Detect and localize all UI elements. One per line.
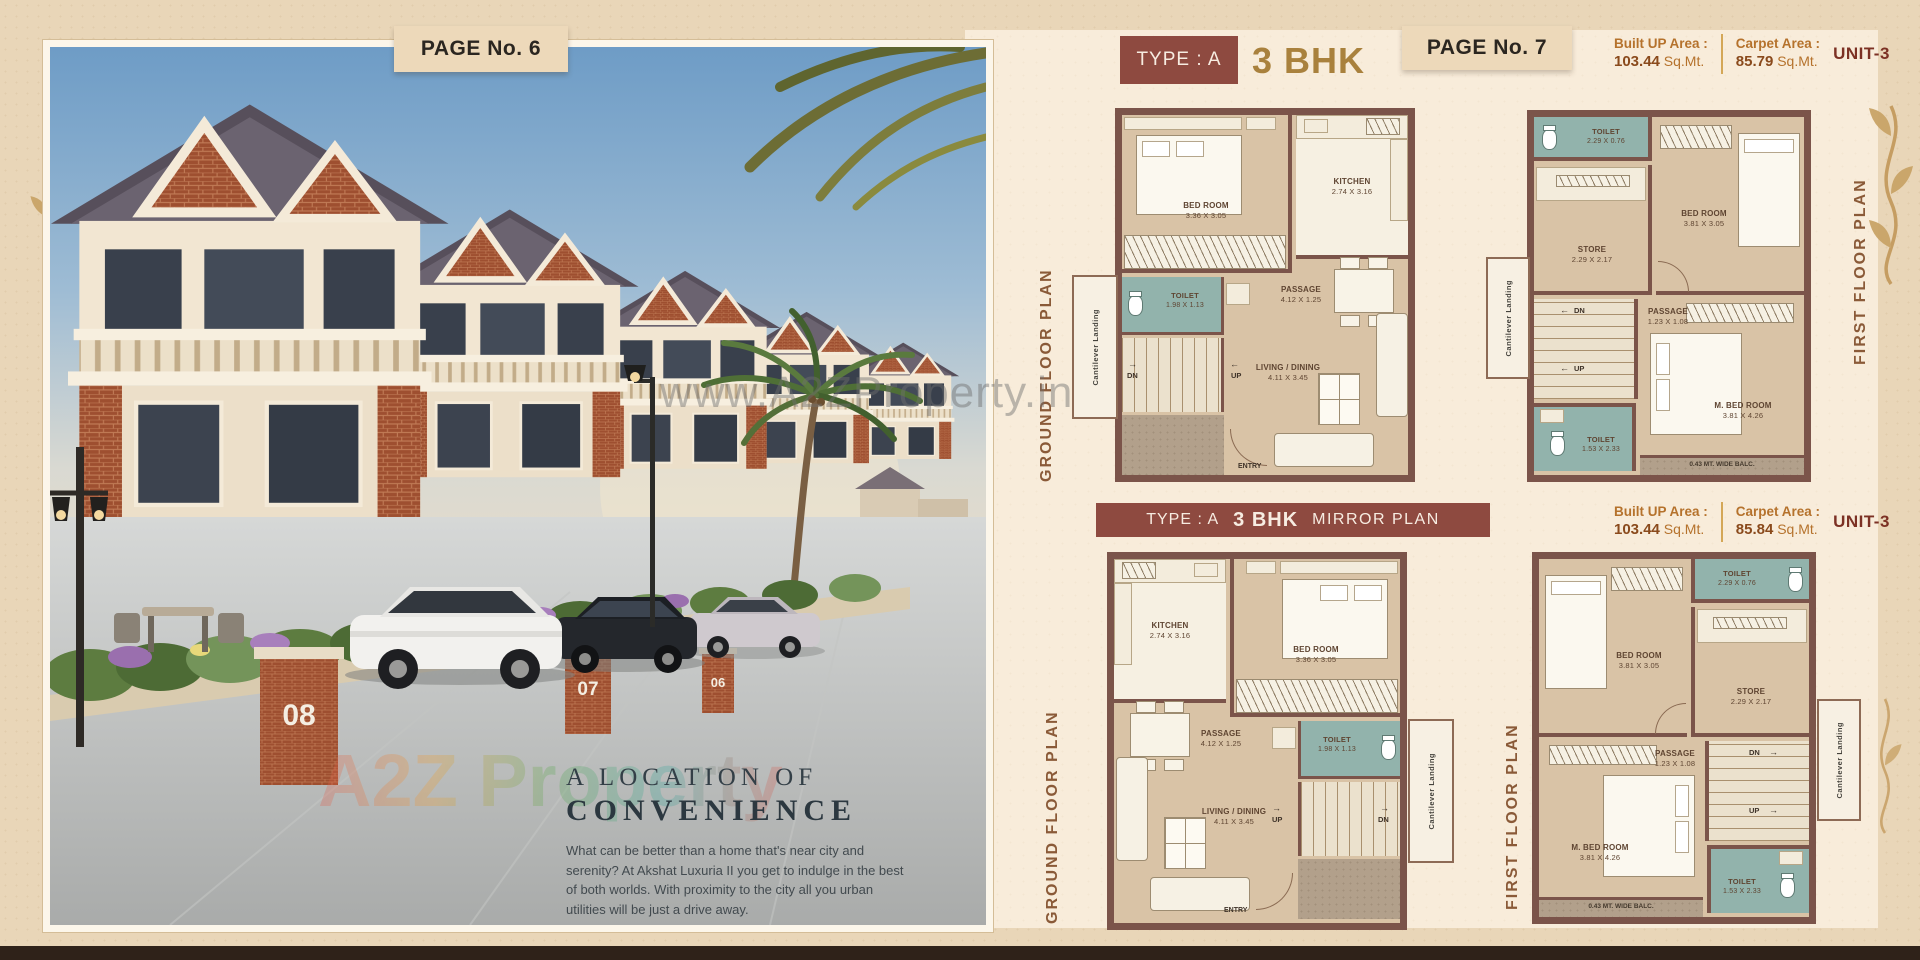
plan-title-mirror-gf: GROUND FLOOR PLAN [1044, 702, 1062, 932]
stair-arrow-icon [1769, 805, 1778, 815]
wc-icon [1128, 295, 1143, 316]
unit-tag: UNIT-3 [1833, 44, 1890, 64]
wardrobe-hatch [1660, 125, 1732, 149]
label-bedroom: BED ROOM3.81 X 3.05 [1658, 209, 1750, 229]
area-info-bottom: Built UP Area : 103.44 Sq.Mt. Carpet Are… [1614, 502, 1890, 542]
stove-icon [1122, 562, 1156, 579]
carpet-value: 85.79 [1736, 53, 1774, 70]
pillow [1142, 141, 1170, 157]
pillow [1744, 139, 1794, 153]
mirror-suffix-label: MIRROR PLAN [1312, 511, 1440, 529]
label-store: STORE2.29 X 2.17 [1697, 687, 1805, 707]
area-info-top: Built UP Area : 103.44 Sq.Mt. Carpet Are… [1614, 34, 1890, 74]
washbasin [1779, 851, 1803, 865]
carpet-unit: Sq.Mt. [1777, 521, 1817, 537]
chair [1164, 701, 1184, 713]
label-toilet-top: TOILET2.29 X 0.76 [1566, 127, 1646, 146]
mirror-type-label: TYPE : A [1146, 511, 1219, 529]
caption-body: What can be better than a home that's ne… [566, 841, 906, 919]
wardrobe-hatch [1611, 567, 1683, 591]
stair-arrow-icon [1560, 363, 1569, 373]
stair-arrow-icon [1560, 305, 1569, 315]
porch [1298, 859, 1400, 919]
chair [1136, 701, 1156, 713]
dresser [1713, 617, 1787, 629]
plan-ground-floor: Cantilever Landing BED ROOM3.36 X 3.05 K… [1115, 108, 1415, 482]
unit-tag: UNIT-3 [1833, 512, 1890, 532]
built-up-area: Built UP Area : 103.44 Sq.Mt. [1614, 36, 1708, 72]
label-kitchen: KITCHEN2.74 X 3.16 [1298, 177, 1406, 197]
sofa [1116, 757, 1148, 861]
label-living: LIVING / DINING4.11 X 3.45 [1184, 807, 1284, 827]
built-up-label: Built UP Area : [1614, 36, 1708, 53]
plan-first-floor: Cantilever Landing TOILET2.29 X 0.76 STO… [1527, 110, 1811, 482]
carpet-unit: Sq.Mt. [1777, 53, 1817, 69]
label-balcony: 0.43 MT. WIDE BALC. [1640, 461, 1804, 468]
pillow [1656, 343, 1670, 375]
sofa [1376, 313, 1408, 417]
built-up-label: Built UP Area : [1614, 504, 1708, 521]
plan-title-mirror-ff: FIRST FLOOR PLAN [1504, 702, 1522, 932]
stair-dn: DN [1749, 748, 1760, 757]
bottom-border-bar [0, 946, 1920, 960]
cantilever-landing: Cantilever Landing [1817, 699, 1861, 821]
dresser [1246, 117, 1276, 130]
dresser [1246, 561, 1276, 574]
pillow [1656, 379, 1670, 411]
house-number-07: 07 [577, 679, 598, 700]
mirror-bhk-label: 3 BHK [1233, 509, 1298, 532]
stair-up: UP [1749, 806, 1759, 815]
wardrobe-hatch [1236, 679, 1398, 713]
built-up-unit: Sq.Mt. [1664, 521, 1704, 537]
couch [1150, 877, 1250, 911]
mirror-plan-header: TYPE : A 3 BHK MIRROR PLAN [1096, 503, 1490, 537]
built-up-value: 103.44 [1614, 521, 1660, 538]
carpet-area: Carpet Area : 85.84 Sq.Mt. [1736, 504, 1820, 540]
label-bedroom: BED ROOM3.36 X 3.05 [1124, 201, 1288, 221]
label-master-bedroom: M. BED ROOM3.81 X 4.26 [1690, 401, 1796, 421]
house-number-06: 06 [711, 675, 725, 690]
house-number-08: 08 [282, 699, 315, 732]
label-passage: PASSAGE4.12 X 1.25 [1146, 729, 1296, 749]
built-up-unit: Sq.Mt. [1664, 53, 1704, 69]
wc-icon [1381, 739, 1396, 760]
stair-arrow-icon [1128, 359, 1137, 369]
entry-label: ENTRY [1224, 907, 1247, 914]
label-balcony: 0.43 MT. WIDE BALC. [1539, 903, 1703, 910]
pillow [1354, 585, 1382, 601]
pillow [1675, 821, 1689, 853]
wc-icon [1788, 571, 1803, 592]
label-store: STORE2.29 X 2.17 [1538, 245, 1646, 265]
couch [1274, 433, 1374, 467]
ornament-flourish-icon [1868, 102, 1914, 288]
door-arc [1256, 873, 1293, 910]
wardrobe-shelf [1280, 561, 1398, 574]
bhk-label: 3 BHK [1252, 40, 1365, 82]
caption-title-line1: A LOCATION OF [566, 764, 911, 792]
wc-icon [1542, 129, 1557, 150]
plan-mirror-first-floor: Cantilever Landing TOILET2.29 X 0.76 STO… [1532, 552, 1816, 924]
carpet-label: Carpet Area : [1736, 504, 1820, 521]
divider [1721, 34, 1723, 74]
built-up-area: Built UP Area : 103.44 Sq.Mt. [1614, 504, 1708, 540]
label-toilet-bottom: TOILET1.53 X 2.33 [1711, 877, 1773, 896]
type-label: TYPE : A [1120, 36, 1238, 84]
dresser [1556, 175, 1630, 187]
stair-dn: DN [1127, 371, 1138, 380]
brochure-spread: 08 07 06 [0, 0, 1920, 960]
stair-up: UP [1574, 364, 1584, 373]
label-toilet-bottom: TOILET1.53 X 2.33 [1570, 435, 1632, 454]
wc-icon [1550, 435, 1565, 456]
wardrobe-hatch [1124, 235, 1286, 269]
ornament-flourish-icon [1864, 696, 1906, 836]
caption-title-line2: CONVENIENCE [566, 794, 911, 828]
carpet-area: Carpet Area : 85.79 Sq.Mt. [1736, 36, 1820, 72]
pillow [1176, 141, 1204, 157]
chair [1164, 759, 1184, 771]
cantilever-landing: Cantilever Landing [1486, 257, 1530, 379]
door-arc [1230, 429, 1267, 466]
label-bedroom: BED ROOM3.81 X 3.05 [1593, 651, 1685, 671]
label-passage: PASSAGE1.23 X 1.08 [1622, 307, 1714, 327]
stove-icon [1366, 118, 1400, 135]
label-bedroom: BED ROOM3.36 X 3.05 [1234, 645, 1398, 665]
cantilever-landing: Cantilever Landing [1072, 275, 1118, 419]
sink-icon [1304, 119, 1328, 133]
chair [1340, 315, 1360, 327]
label-passage: PASSAGE1.23 X 1.08 [1629, 749, 1721, 769]
entry-label: ENTRY [1238, 463, 1261, 470]
carpet-value: 85.84 [1736, 521, 1774, 538]
label-passage: PASSAGE4.12 X 1.25 [1226, 285, 1376, 305]
washbasin [1540, 409, 1564, 423]
pillow [1551, 581, 1601, 595]
sink-icon [1194, 563, 1218, 577]
label-toilet: TOILET1.98 X 1.13 [1300, 735, 1374, 754]
stair-dn: DN [1378, 815, 1389, 824]
page-tag-right: PAGE No. 7 [1402, 26, 1572, 70]
divider [1721, 502, 1723, 542]
carpet-label: Carpet Area : [1736, 36, 1820, 53]
label-toilet-top: TOILET2.29 X 0.76 [1697, 569, 1777, 588]
page-tag-left: PAGE No. 6 [394, 26, 568, 72]
chair [1340, 257, 1360, 269]
wc-icon [1780, 877, 1795, 898]
stair-arrow-icon [1380, 803, 1389, 813]
label-living: LIVING / DINING4.11 X 3.45 [1238, 363, 1338, 383]
cantilever-landing: Cantilever Landing [1408, 719, 1454, 863]
pillow [1675, 785, 1689, 817]
pillow [1320, 585, 1348, 601]
wardrobe-shelf [1124, 117, 1242, 130]
built-up-value: 103.44 [1614, 53, 1660, 70]
plan-mirror-ground-floor: Cantilever Landing BED ROOM3.36 X 3.05 K… [1107, 552, 1407, 930]
label-toilet: TOILET1.98 X 1.13 [1148, 291, 1222, 310]
chair [1368, 257, 1388, 269]
label-kitchen: KITCHEN2.74 X 3.16 [1116, 621, 1224, 641]
plan-title-ff: FIRST FLOOR PLAN [1852, 146, 1870, 398]
label-master-bedroom: M. BED ROOM3.81 X 4.26 [1547, 843, 1653, 863]
plan-title-gf: GROUND FLOOR PLAN [1038, 266, 1056, 484]
stair-dn: DN [1574, 306, 1585, 315]
stair-arrow-icon [1769, 747, 1778, 757]
caption-block: A LOCATION OF CONVENIENCE What can be be… [566, 764, 911, 919]
porch [1122, 415, 1224, 475]
